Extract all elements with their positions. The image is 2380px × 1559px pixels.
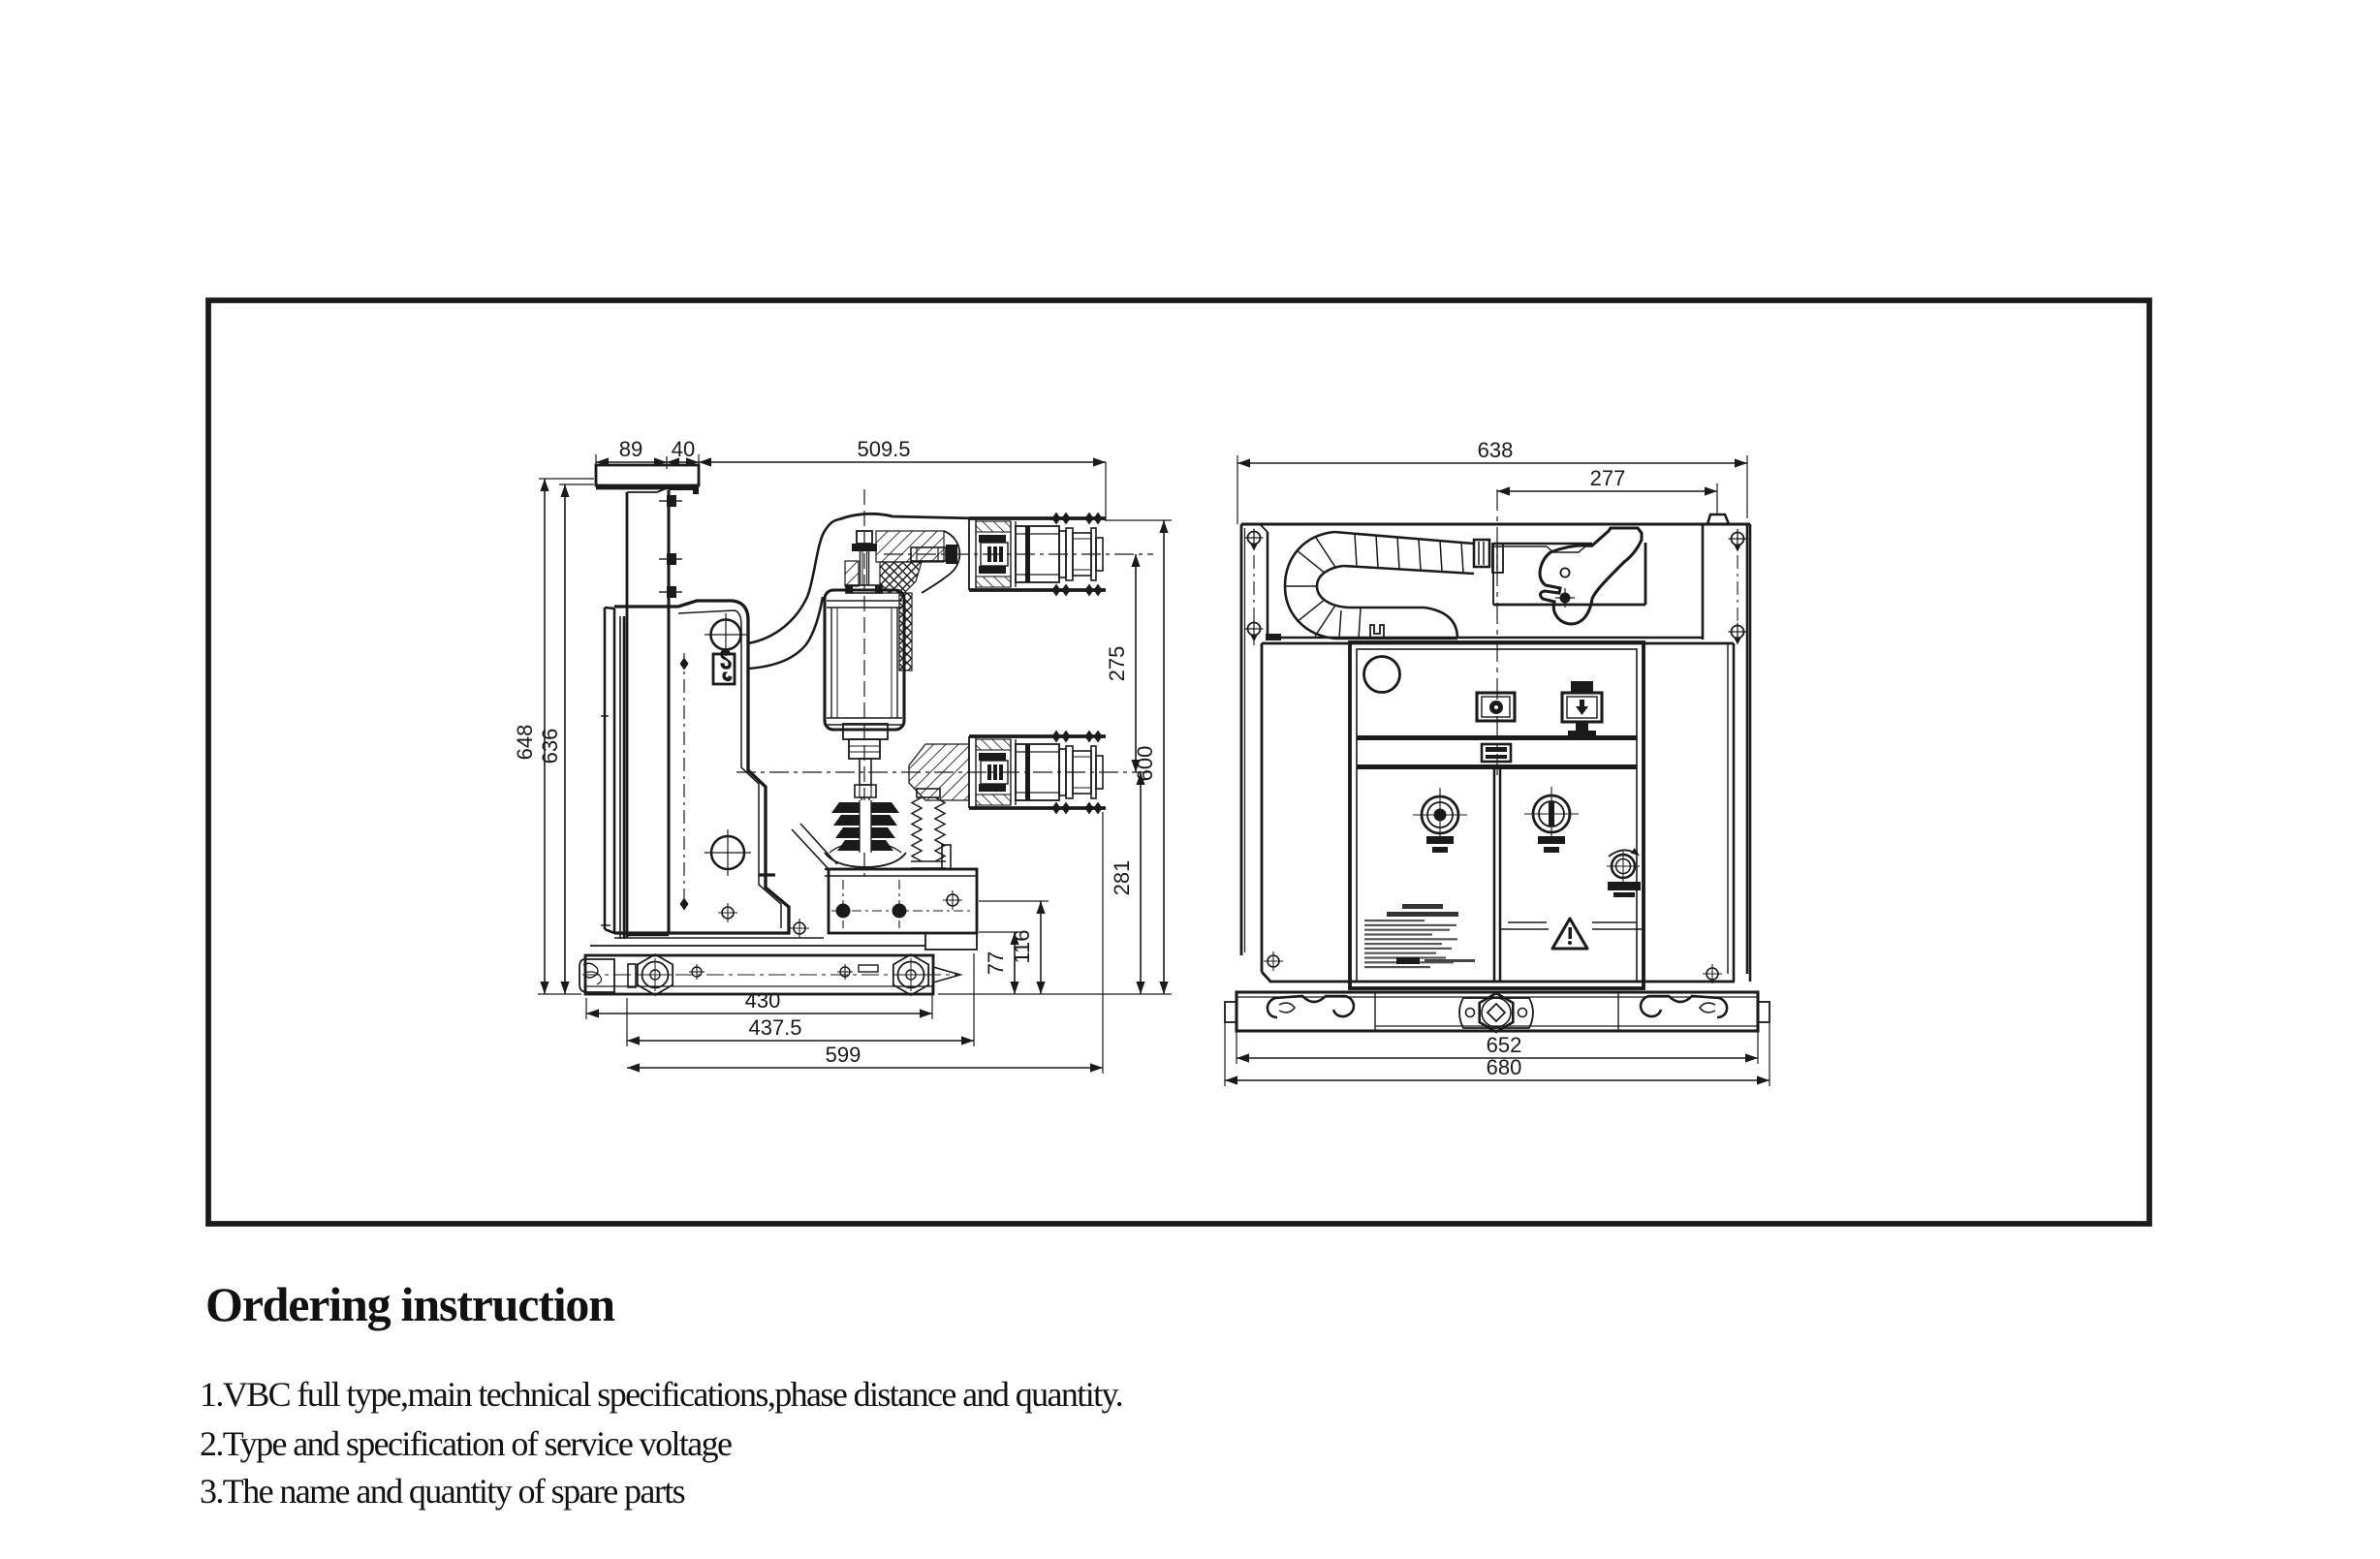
- svg-text:509.5: 509.5: [857, 437, 910, 461]
- svg-text:636: 636: [538, 729, 562, 764]
- svg-text:599: 599: [826, 1043, 861, 1067]
- svg-text:3.The name and quantity of spa: 3.The name and quantity of spare parts: [200, 1472, 685, 1511]
- svg-text:437.5: 437.5: [748, 1015, 801, 1040]
- svg-text:2.Type and specification of se: 2.Type and specification of service volt…: [200, 1424, 732, 1463]
- svg-text:430: 430: [745, 988, 781, 1013]
- svg-text:275: 275: [1105, 646, 1129, 682]
- svg-text:89: 89: [619, 437, 642, 461]
- svg-text:680: 680: [1487, 1055, 1522, 1079]
- svg-text:600: 600: [1133, 746, 1157, 782]
- svg-text:77: 77: [984, 951, 1008, 975]
- svg-text:638: 638: [1478, 438, 1514, 462]
- svg-text:648: 648: [513, 725, 537, 761]
- svg-text:277: 277: [1590, 466, 1626, 490]
- svg-text:40: 40: [672, 437, 695, 461]
- svg-text:652: 652: [1487, 1033, 1522, 1057]
- svg-text:1.VBC full type,main technical: 1.VBC full type,main technical specifica…: [200, 1375, 1122, 1414]
- svg-text:116: 116: [1010, 929, 1034, 963]
- svg-text:Ordering instruction: Ordering instruction: [205, 1277, 615, 1331]
- svg-text:281: 281: [1110, 860, 1134, 896]
